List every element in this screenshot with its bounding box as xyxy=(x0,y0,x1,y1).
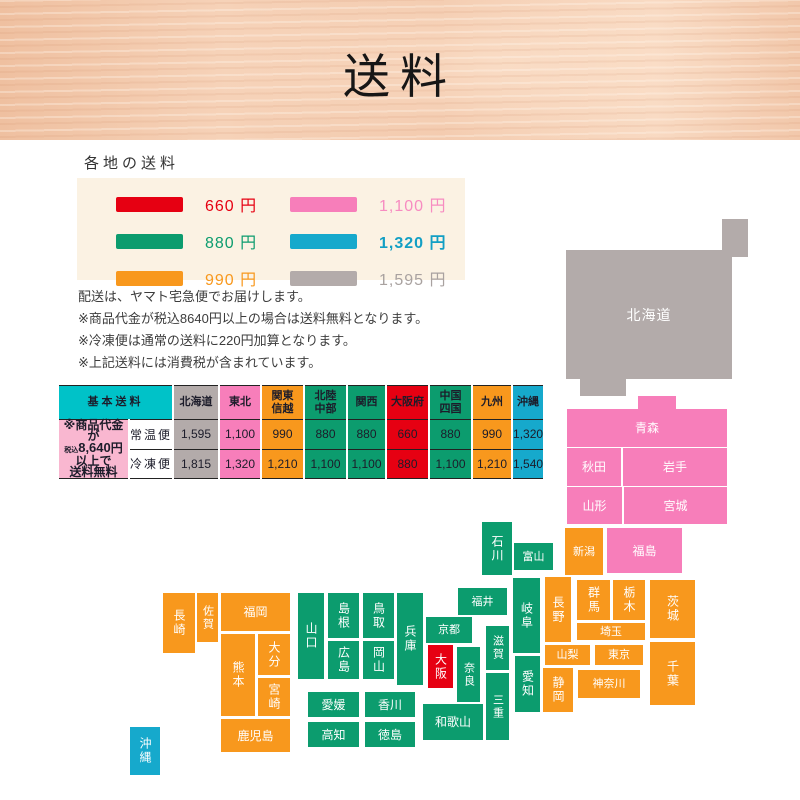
map-pref-yamagata: 山形 xyxy=(567,487,622,524)
map-pref-wakayama: 和歌山 xyxy=(423,704,483,740)
map-pref-kagawa: 香川 xyxy=(365,692,415,717)
map-pref-fukui: 福井 xyxy=(458,588,507,615)
map-pref-okinawa: 沖縄 xyxy=(130,727,160,775)
map-pref-nara: 奈良 xyxy=(457,647,480,702)
map-pref-kagoshima: 鹿児島 xyxy=(221,719,290,752)
map-pref-shimane: 島根 xyxy=(328,593,359,638)
map-pref-niigata: 新潟 xyxy=(565,528,603,575)
map-pref-aomori: 青森 xyxy=(567,409,727,447)
map-pref-kanagawa: 神奈川 xyxy=(578,670,640,698)
map-pref-chiba: 千葉 xyxy=(650,642,695,705)
map-pref-ehime: 愛媛 xyxy=(308,692,359,717)
map-pref-gunma: 群馬 xyxy=(577,580,610,620)
map-pref-mie: 三重 xyxy=(486,673,509,740)
map-hokkaido-tab-sw xyxy=(580,378,626,396)
map-pref-shiga: 滋賀 xyxy=(486,626,509,670)
map-pref-iwate: 岩手 xyxy=(623,448,727,486)
map-pref-tochigi: 栃木 xyxy=(613,580,645,620)
map-pref-hokkaido: 北海道 xyxy=(566,250,732,379)
map-pref-tokyo: 東京 xyxy=(595,645,643,665)
map-aomori-tab xyxy=(638,396,676,410)
map-pref-aichi: 愛知 xyxy=(515,656,540,712)
map-pref-saga: 佐賀 xyxy=(197,593,218,642)
map-pref-hiroshima: 広島 xyxy=(328,641,359,679)
map-pref-kochi: 高知 xyxy=(308,722,359,747)
map-pref-okayama: 岡山 xyxy=(363,641,394,679)
map-pref-oita: 大分 xyxy=(258,634,290,675)
map-pref-ibaraki: 茨城 xyxy=(650,580,695,638)
map-pref-akita: 秋田 xyxy=(567,448,621,486)
map-pref-miyagi: 宮城 xyxy=(624,487,727,524)
map-pref-saitama: 埼玉 xyxy=(577,623,645,640)
map-pref-miyazaki: 宮崎 xyxy=(258,678,290,716)
map-pref-tottori: 鳥取 xyxy=(363,593,394,638)
map-pref-kyoto: 京都 xyxy=(426,617,472,643)
japan-shipping-map: 北海道 青森 秋田 岩手 山形 宮城 福島 新潟 長野 群馬 栃木 茨城 埼玉 … xyxy=(0,0,800,800)
map-pref-yamanashi: 山梨 xyxy=(545,645,590,665)
map-pref-fukuoka: 福岡 xyxy=(221,593,290,631)
map-pref-osaka: 大阪 xyxy=(428,645,453,688)
map-pref-toyama: 富山 xyxy=(514,543,553,570)
map-pref-nagasaki: 長崎 xyxy=(163,593,195,653)
map-pref-shizuoka: 静岡 xyxy=(543,668,573,712)
map-pref-tokushima: 徳島 xyxy=(365,722,415,747)
map-pref-hyogo: 兵庫 xyxy=(397,593,423,685)
map-pref-gifu: 岐阜 xyxy=(513,578,540,653)
map-pref-yamaguchi: 山口 xyxy=(298,593,324,679)
map-pref-kumamoto: 熊本 xyxy=(221,634,255,716)
map-pref-nagano: 長野 xyxy=(545,577,571,642)
map-pref-fukushima: 福島 xyxy=(607,528,682,573)
map-pref-ishikawa: 石川 xyxy=(482,522,512,575)
